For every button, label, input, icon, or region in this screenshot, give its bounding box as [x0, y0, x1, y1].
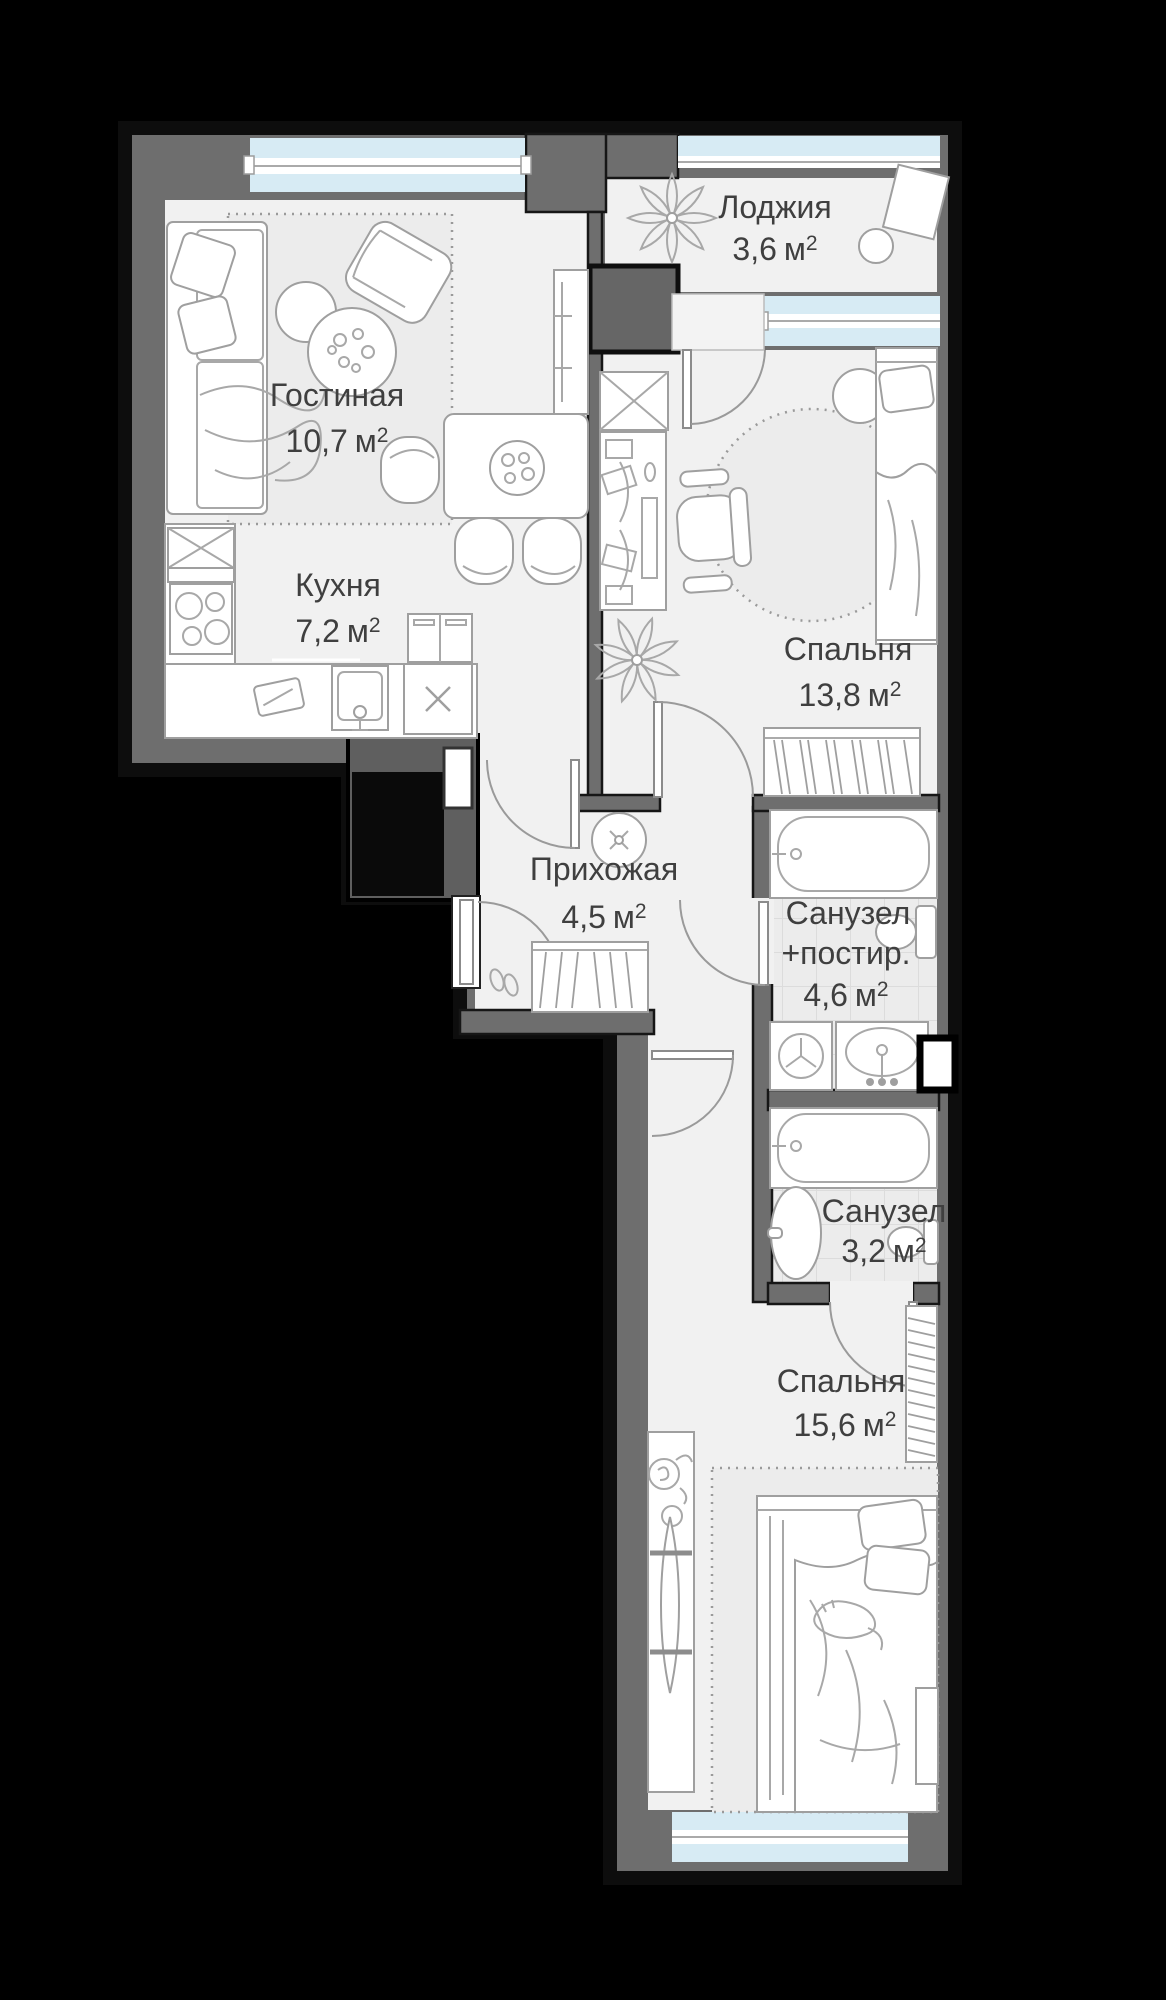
svg-text:3,6м2: 3,6м2: [732, 231, 817, 267]
svg-text:Кухня: Кухня: [295, 567, 381, 603]
chair-icon: [523, 518, 581, 584]
floor-plan-drawing: Лоджия 3,6м2 Гостиная 10,7м2 Кухня 7,2м2…: [0, 0, 1166, 2000]
wall-hallway-bottom: [460, 1010, 654, 1034]
pillow-icon: [177, 295, 238, 356]
wardrobe-icon: [600, 372, 668, 430]
svg-text:Прихожая: Прихожая: [530, 851, 678, 887]
pillow-icon: [857, 1499, 927, 1551]
tv-unit-icon: [554, 270, 588, 414]
svg-text:3,2м2: 3,2м2: [841, 1233, 926, 1269]
washing-machine-icon: [770, 1022, 832, 1090]
svg-text:+постир.: +постир.: [781, 935, 910, 971]
window-pillar-stem: [526, 134, 606, 212]
pillow-icon: [864, 1545, 930, 1595]
svg-text:13,8м2: 13,8м2: [799, 677, 902, 713]
svg-text:Гостиная: Гостиная: [270, 377, 404, 413]
closet-icon: [532, 942, 648, 1012]
kitchen-sink-icon: [332, 666, 388, 730]
double-bed-icon: [757, 1496, 937, 1812]
chair-icon: [381, 437, 439, 503]
svg-text:Спальня: Спальня: [784, 631, 913, 667]
svg-text:7,2м2: 7,2м2: [295, 613, 380, 649]
svg-text:10,7м2: 10,7м2: [286, 423, 389, 459]
pillow-icon: [878, 365, 934, 414]
bench-icon: [916, 1688, 938, 1784]
dishwasher-icon: [404, 664, 472, 734]
sink-icon: [836, 1022, 928, 1090]
svg-text:Лоджия: Лоджия: [718, 189, 831, 225]
dining-table-icon: [444, 414, 588, 518]
wall-hall-cap: [578, 795, 660, 811]
cabinet-icon: [168, 528, 234, 582]
shaft-icon: [920, 1038, 955, 1090]
fridge-icon: [408, 614, 472, 662]
single-bed-icon: [876, 348, 937, 644]
wall-bath1-north: [753, 795, 939, 811]
structural-column: [590, 266, 678, 352]
svg-text:Санузел: Санузел: [822, 1193, 947, 1229]
wall-bath2-south-b: [913, 1283, 939, 1304]
shaft-dark: [352, 772, 444, 896]
console-icon: [648, 1432, 694, 1792]
wardrobe-rail-icon: [906, 1306, 937, 1462]
bathtub-icon: [770, 1108, 937, 1188]
svg-text:4,6м2: 4,6м2: [803, 977, 888, 1013]
svg-text:15,6м2: 15,6м2: [794, 1407, 897, 1443]
wardrobe-rail-icon: [764, 728, 920, 796]
desk-icon: [600, 432, 666, 610]
stool-icon: [859, 229, 893, 263]
living-window: [244, 138, 531, 192]
svg-text:Санузел: Санузел: [786, 895, 911, 931]
bedroom-2-window: [672, 1812, 908, 1862]
bathtub-icon: [770, 810, 937, 898]
vent-shaft: [444, 748, 472, 808]
loggia-window: [678, 136, 940, 168]
chair-icon: [455, 518, 513, 584]
bedroom-1-window: [758, 296, 940, 346]
wall-bath2-south-a: [768, 1283, 830, 1304]
stove-icon: [170, 584, 232, 654]
floor-plan: Лоджия 3,6м2 Гостиная 10,7м2 Кухня 7,2м2…: [0, 0, 1166, 2000]
svg-text:Спальня: Спальня: [777, 1363, 906, 1399]
svg-text:4,5м2: 4,5м2: [561, 899, 646, 935]
